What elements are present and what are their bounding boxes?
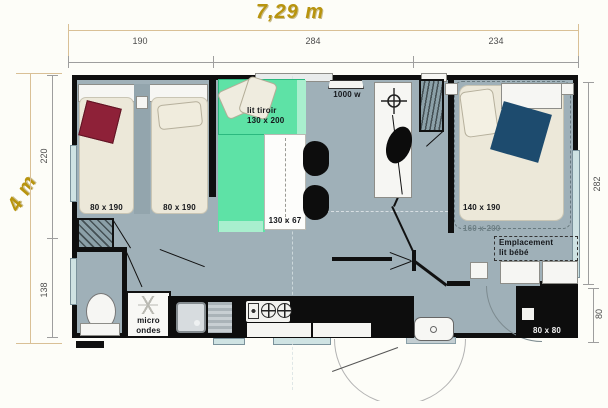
dim-tick bbox=[47, 337, 58, 338]
bench-1 bbox=[500, 261, 540, 284]
sofa-label-2: 130 x 200 bbox=[247, 116, 305, 126]
dimension-line-right bbox=[588, 82, 589, 284]
shower-drain bbox=[522, 308, 534, 320]
chair-1 bbox=[303, 141, 329, 176]
dimension-line-left bbox=[52, 75, 53, 338]
dim-right-2: 80 bbox=[594, 299, 604, 329]
bed-single-1-label: 80 x 190 bbox=[79, 203, 134, 213]
sofa-arm bbox=[218, 135, 265, 232]
dim-tick bbox=[68, 56, 69, 68]
dim-tick bbox=[583, 284, 594, 285]
fan-icon bbox=[138, 296, 158, 314]
sink-drain bbox=[194, 320, 200, 326]
window-bottom-kitchen bbox=[273, 337, 331, 345]
dim-right-1: 282 bbox=[592, 164, 602, 204]
dim-tick bbox=[213, 56, 214, 68]
shower-label: 80 x 80 bbox=[520, 326, 574, 336]
floorplan-canvas: 7,29 m 190 284 234 4 m 220 138 282 80 bbox=[0, 0, 608, 408]
dim-left-1: 220 bbox=[39, 136, 49, 176]
dim-tick bbox=[588, 342, 599, 343]
sink-basin bbox=[176, 302, 206, 333]
heater-label: 1000 w bbox=[325, 90, 369, 100]
microwave-label-2: ondes bbox=[126, 326, 171, 336]
corner-block-1 bbox=[445, 83, 458, 95]
table-label: 130 x 67 bbox=[264, 216, 306, 226]
baby-bed-label-1: Emplacement bbox=[499, 238, 577, 248]
door-arc-entrance bbox=[334, 339, 466, 401]
dim-top-1: 190 bbox=[110, 36, 170, 46]
wall-bedroom-left bbox=[209, 75, 216, 197]
dimension-line-segments bbox=[68, 62, 579, 63]
wall-heater bbox=[328, 80, 364, 89]
baby-bed-label-2: lit bébé bbox=[499, 248, 577, 258]
dim-tick bbox=[47, 75, 58, 76]
dimension-line-total-height bbox=[30, 73, 31, 344]
cabinet-front-1 bbox=[247, 323, 311, 337]
dim-tick bbox=[588, 288, 599, 289]
burner-1 bbox=[261, 303, 276, 318]
total-height-label: 4 m bbox=[3, 172, 42, 216]
wardrobe-left-bedroom bbox=[77, 218, 114, 249]
pillow-white bbox=[157, 101, 203, 130]
wall-bath-top-a bbox=[447, 281, 470, 286]
hob-control bbox=[248, 303, 259, 319]
cabinet-front-2 bbox=[313, 323, 371, 337]
window-left-1 bbox=[70, 145, 77, 202]
wardrobe-living bbox=[419, 79, 444, 132]
bed-single-2-label: 80 x 190 bbox=[151, 203, 208, 213]
wall-hall-bath bbox=[332, 257, 392, 261]
entry-step bbox=[76, 341, 104, 348]
sofa-label-1: lit tiroir bbox=[247, 106, 305, 116]
toilet-tank bbox=[80, 323, 120, 336]
bed-double-label: 140 x 190 bbox=[463, 203, 533, 213]
dim-tick bbox=[413, 56, 414, 68]
dim-tick bbox=[583, 82, 594, 83]
burner-2 bbox=[277, 303, 292, 318]
sink-drainer bbox=[208, 302, 232, 333]
bench-2 bbox=[542, 261, 578, 284]
dim-left-2: 138 bbox=[39, 270, 49, 310]
dim-top-3: 234 bbox=[466, 36, 526, 46]
pillow-double bbox=[459, 88, 499, 138]
window-bottom-left bbox=[213, 338, 245, 345]
dim-tick bbox=[47, 238, 58, 239]
dim-top-2: 284 bbox=[283, 36, 343, 46]
dim-tick bbox=[16, 73, 62, 74]
dim-tick bbox=[578, 56, 579, 68]
washbasin-faucet bbox=[430, 326, 437, 333]
microwave-label-1: micro bbox=[126, 316, 171, 326]
corner-block-2 bbox=[561, 83, 574, 95]
stool bbox=[470, 262, 488, 279]
sofa-edge-2 bbox=[219, 221, 263, 232]
nightstand bbox=[136, 96, 148, 109]
dim-tick bbox=[16, 343, 62, 344]
bed-double-outer-label: 160 x 200 bbox=[463, 224, 533, 233]
table-fold-line bbox=[285, 138, 286, 222]
vent-crosshair-icon bbox=[380, 87, 408, 115]
dimension-line-total-width bbox=[68, 30, 579, 31]
chair-2 bbox=[303, 185, 329, 220]
window-left-2 bbox=[70, 258, 77, 305]
total-width-label: 7,29 m bbox=[190, 1, 390, 24]
